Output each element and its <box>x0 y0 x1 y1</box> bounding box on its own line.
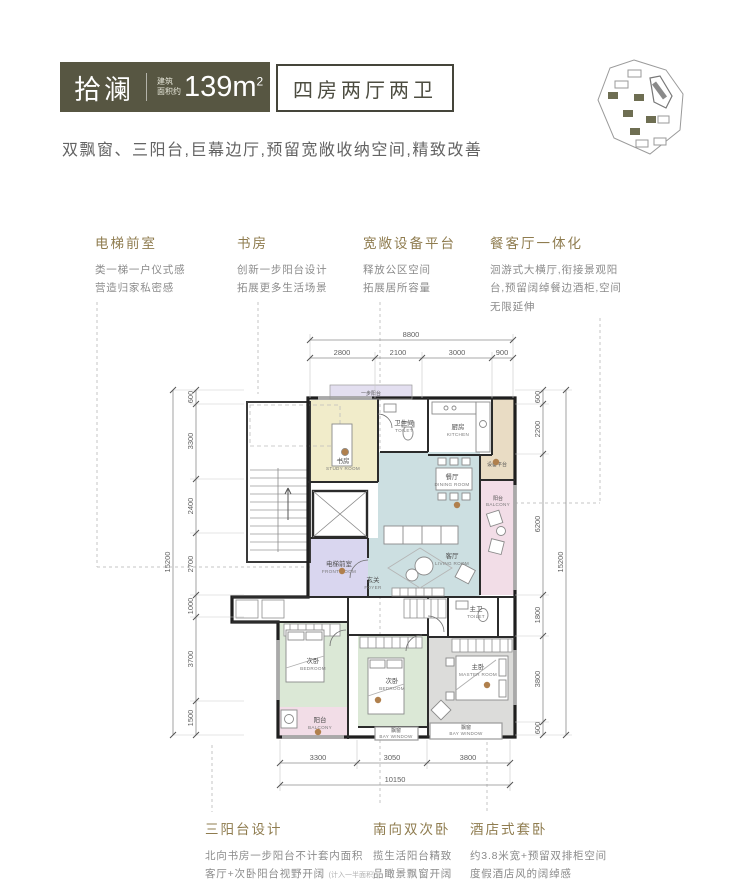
svg-text:BAY WINDOW: BAY WINDOW <box>379 734 413 739</box>
svg-text:BAY WINDOW: BAY WINDOW <box>449 731 483 736</box>
room-label-foyer: 玄关 <box>367 575 381 584</box>
dim-left-total: 15200 <box>163 552 172 573</box>
svg-text:3300: 3300 <box>310 753 327 762</box>
svg-text:BEDROOM: BEDROOM <box>300 666 326 671</box>
svg-text:6200: 6200 <box>533 516 542 533</box>
svg-text:600: 600 <box>533 722 542 735</box>
elevator-shaft <box>313 491 367 537</box>
room-label-bay2: 飘窗 <box>461 724 471 731</box>
svg-text:BALCONY: BALCONY <box>486 502 510 507</box>
svg-text:TOILET: TOILET <box>395 428 413 433</box>
svg-text:2200: 2200 <box>533 421 542 438</box>
svg-text:DINING ROOM: DINING ROOM <box>435 482 470 487</box>
room-label-master: 主卧 <box>472 662 486 671</box>
svg-text:2400: 2400 <box>186 498 195 515</box>
svg-text:3800: 3800 <box>533 671 542 688</box>
svg-text:600: 600 <box>186 391 195 404</box>
room-label-living: 客厅 <box>446 551 460 560</box>
svg-text:TOILET: TOILET <box>467 614 485 619</box>
floorplan-flyer-page: 拾澜 建筑 面积约 139m2 四房两厅两卫 双飘窗、三阳台,巨幕边厅,预留宽敞… <box>0 0 740 896</box>
svg-text:2700: 2700 <box>186 556 195 573</box>
svg-text:3700: 3700 <box>186 651 195 668</box>
svg-text:2800: 2800 <box>334 348 351 357</box>
room-label-dining: 餐厅 <box>446 472 460 481</box>
room-label-kitchen: 厨房 <box>452 422 465 431</box>
room-label-balcony-bottom: 阳台 <box>314 715 327 724</box>
svg-text:BALCONY: BALCONY <box>308 725 332 730</box>
svg-text:3000: 3000 <box>449 348 466 357</box>
dim-right-total: 15200 <box>556 552 565 573</box>
svg-text:3300: 3300 <box>186 433 195 450</box>
svg-text:BEDROOM: BEDROOM <box>379 686 405 691</box>
dim-bottom-total: 10150 <box>385 775 406 784</box>
dim-top-total: 8800 <box>403 330 420 339</box>
room-label-bedroom1: 次卧 <box>307 656 321 665</box>
svg-text:KITCHEN: KITCHEN <box>447 432 469 437</box>
svg-text:3800: 3800 <box>460 753 477 762</box>
svg-text:2100: 2100 <box>390 348 407 357</box>
floorplan-drawing: 一步阳台 书房 STUDY ROOM 卫生间 TOILET 厨房 KITCHEN… <box>0 0 740 896</box>
svg-text:3050: 3050 <box>384 753 401 762</box>
svg-text:STUDY ROOM: STUDY ROOM <box>326 466 360 471</box>
room-label-master-toilet: 主卫 <box>470 604 484 613</box>
room-label-bedroom2: 次卧 <box>386 676 400 685</box>
svg-text:一步阳台: 一步阳台 <box>361 390 381 397</box>
room-label-toilet: 卫生间 <box>394 418 414 427</box>
svg-text:600: 600 <box>533 391 542 404</box>
svg-text:MASTER ROOM: MASTER ROOM <box>459 672 497 677</box>
svg-text:1800: 1800 <box>533 607 542 624</box>
svg-text:1500: 1500 <box>186 710 195 727</box>
svg-text:1000: 1000 <box>186 598 195 615</box>
svg-text:900: 900 <box>496 348 509 357</box>
room-label-balcony-right: 阳台 <box>493 495 503 502</box>
room-label-bay1: 飘窗 <box>391 727 401 734</box>
svg-text:FOYER: FOYER <box>364 585 382 590</box>
room-label-study: 书房 <box>337 456 350 465</box>
svg-text:LIVING ROOM: LIVING ROOM <box>435 561 469 566</box>
room-label-front-room: 电梯前室 <box>326 559 353 568</box>
